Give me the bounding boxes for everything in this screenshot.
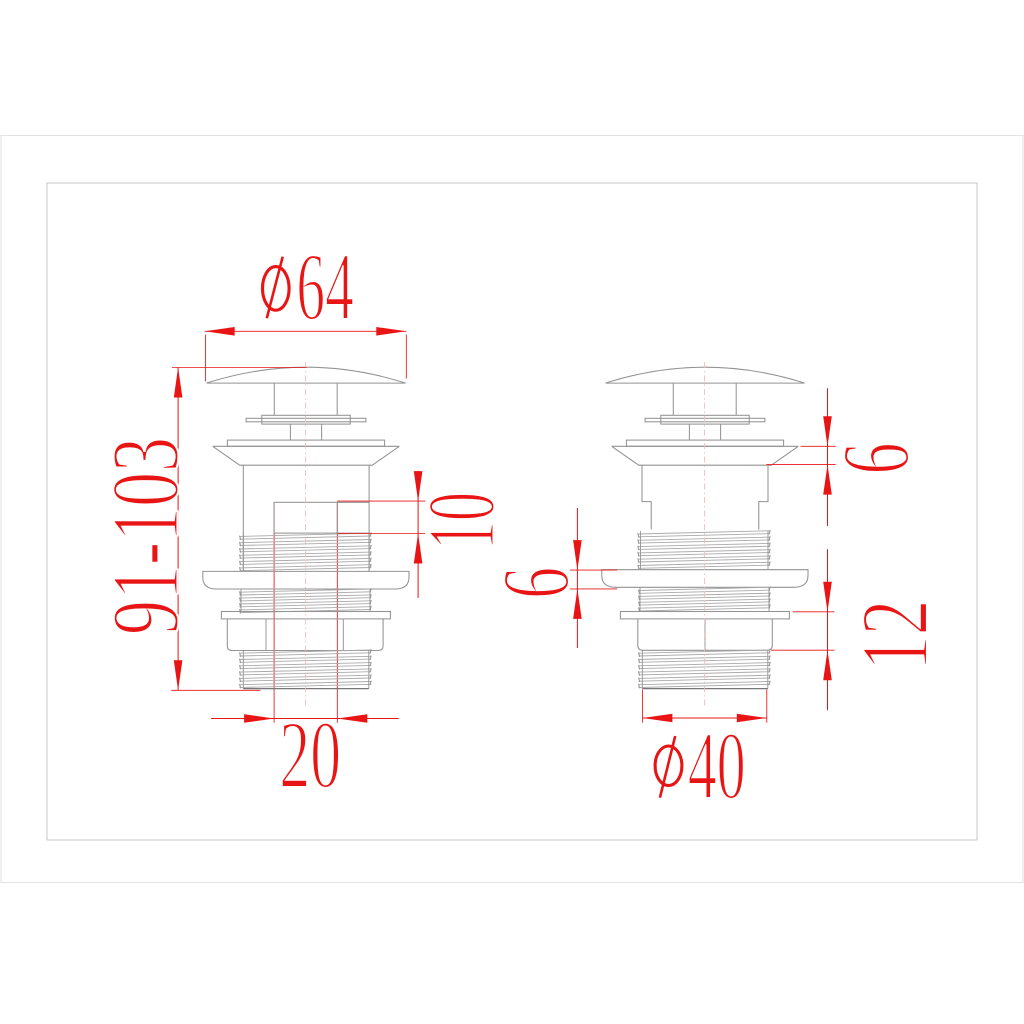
svg-text:64: 64 bbox=[296, 233, 353, 340]
svg-text:10: 10 bbox=[408, 492, 515, 550]
svg-text:6: 6 bbox=[822, 443, 929, 475]
svg-text:6: 6 bbox=[482, 567, 589, 599]
svg-text:40: 40 bbox=[688, 712, 746, 819]
svg-text:12: 12 bbox=[841, 600, 948, 672]
svg-text:91-103: 91-103 bbox=[91, 437, 198, 635]
svg-text:20: 20 bbox=[279, 701, 341, 808]
